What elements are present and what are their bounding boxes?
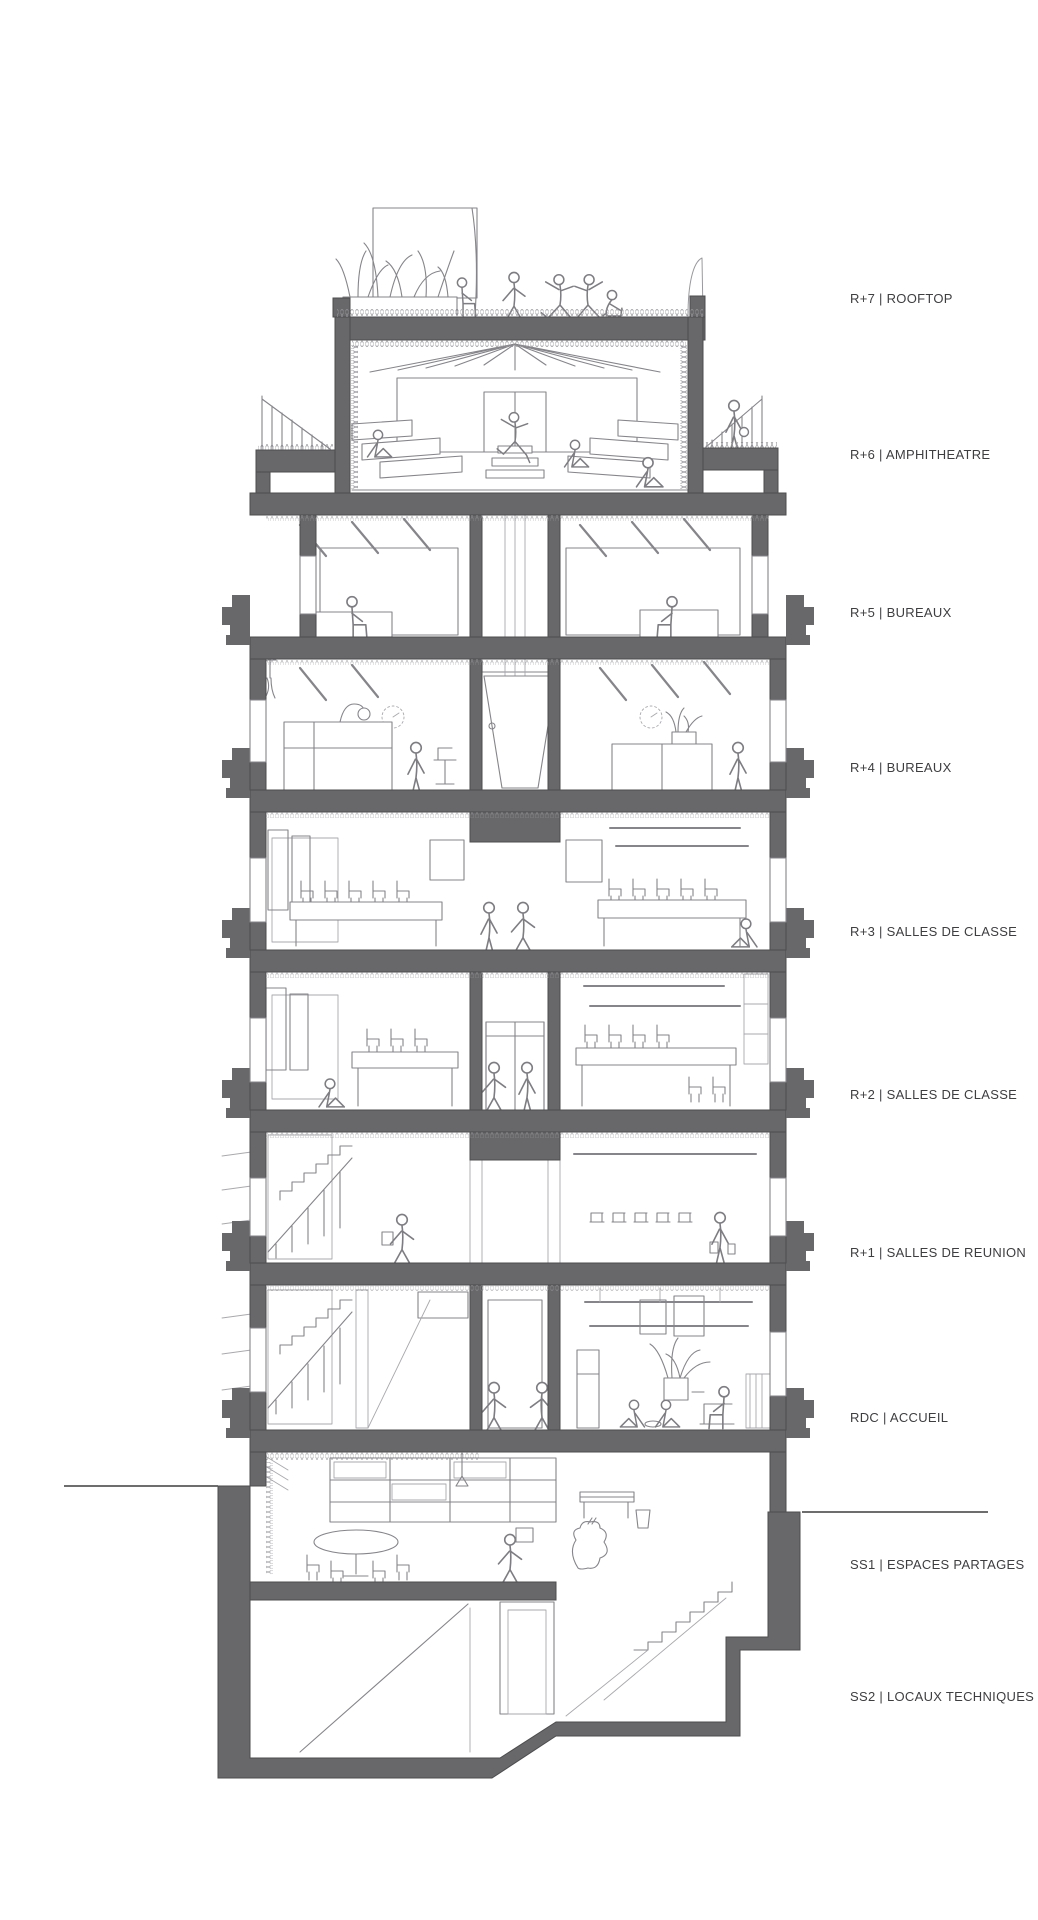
- rdc-accueil: [222, 1288, 782, 1428]
- r3-classrooms: [268, 828, 748, 946]
- section-sheet: R+7 | ROOFTOPR+6 | AMPHITHEATRER+5 | BUR…: [0, 0, 1038, 1920]
- rooftop-scene: [336, 208, 703, 317]
- ground-lines: [64, 1486, 988, 1512]
- ss1-shared: [252, 1448, 650, 1586]
- r5-offices: [300, 519, 740, 637]
- section-drawing: [0, 0, 1038, 1920]
